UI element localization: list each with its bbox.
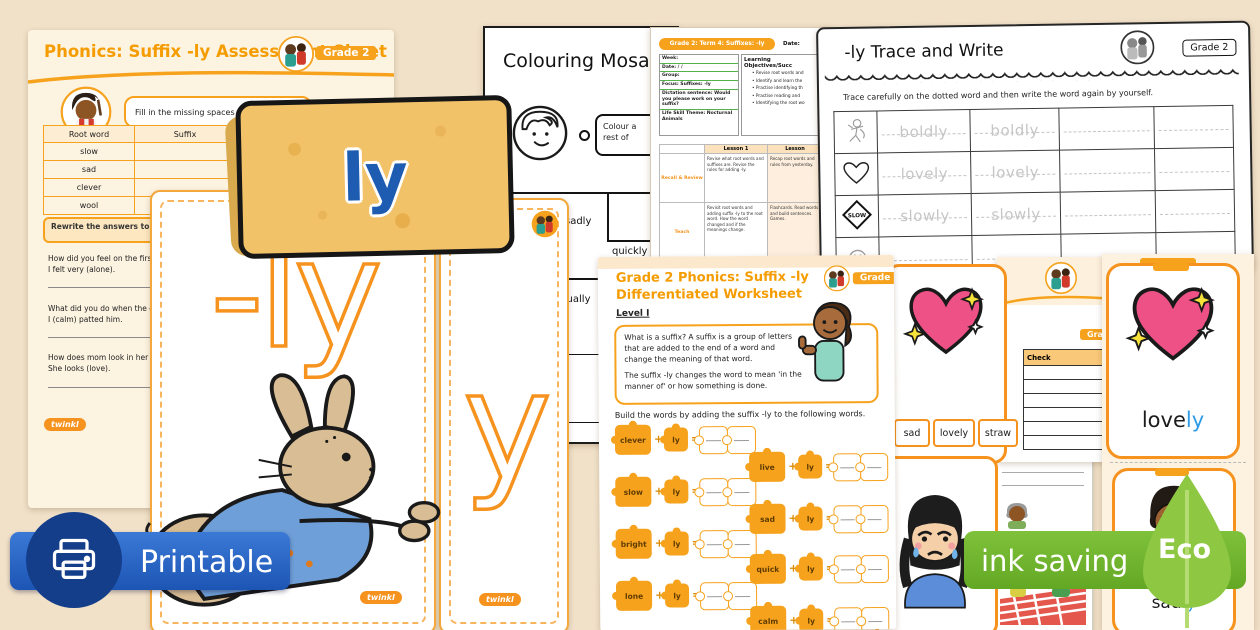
grade-badge: Grade 2 xyxy=(316,46,376,60)
row-label: Recall & Review xyxy=(660,154,705,203)
plan-cell: Flashcards. Read words and build sentenc… xyxy=(768,203,823,262)
mosaic-grid-line xyxy=(485,192,677,194)
puzzle-blank[interactable] xyxy=(861,555,889,583)
column-header: Root word xyxy=(44,126,135,143)
trace-word: lovely xyxy=(900,164,948,183)
check-cell[interactable] xyxy=(1024,436,1103,450)
cut-line xyxy=(1110,462,1246,463)
row-label: Teach xyxy=(660,203,705,262)
mosaic-title: Colouring Mosaic xyxy=(503,50,665,72)
plan-field: Date: / / xyxy=(660,64,738,73)
worksheet-title-line2: Differentiated Worksheet xyxy=(616,287,802,303)
trace-word-cell: boldly xyxy=(970,108,1060,151)
twinkl-logo: twinkl xyxy=(44,418,86,431)
suffix-tag: ly xyxy=(235,95,515,259)
word-suffix: ly xyxy=(1186,408,1204,432)
word-root: love xyxy=(1142,408,1186,432)
write-cell[interactable] xyxy=(1154,147,1234,190)
puzzle-word: clever xyxy=(615,425,651,455)
objective-item: • Identifying the root wo xyxy=(752,101,820,107)
write-cell[interactable] xyxy=(1060,191,1156,234)
trace-word: lovely xyxy=(991,163,1039,182)
date-label: Date: xyxy=(783,41,800,47)
plan-header: Grade 2: Term 4: Suffixes: -ly xyxy=(659,38,775,50)
twinkl-kids-logo xyxy=(824,265,850,291)
plan-cell: Revisit root words and adding suffix -ly… xyxy=(705,203,768,262)
speech-connector-dot xyxy=(579,130,590,141)
card-word: lovely xyxy=(1109,408,1237,432)
trace-row: SLOW slowly slowly xyxy=(835,189,1235,237)
girl-thumbs-up-illustration xyxy=(794,295,861,387)
plan-objectives-box: Learning Objectives/Succ • Revise root w… xyxy=(741,54,823,136)
puzzle-word: sad xyxy=(749,504,785,534)
plan-lesson-table: Lesson 1 Lesson Recall & Review Revise w… xyxy=(659,144,823,262)
question-text: How did you feel on the first d xyxy=(48,254,161,263)
question-text: What did you do when the dog xyxy=(48,304,163,313)
answer-text: She looks (love). xyxy=(48,364,110,373)
trace-word: boldly xyxy=(990,121,1039,140)
objective-item: • Revise root words and xyxy=(752,71,820,77)
puzzle-blank[interactable] xyxy=(727,426,756,454)
resource-preview-canvas: Colouring Mosaic Colour a rest of sadly … xyxy=(0,0,1260,630)
puzzle-suffix: ly xyxy=(665,583,689,607)
plan-cell: Revise what root words and suffixes are.… xyxy=(705,154,768,203)
root-word-cell: clever xyxy=(44,179,135,197)
objectives-header: Learning Objectives/Succ xyxy=(744,57,820,69)
puzzle-blank[interactable] xyxy=(860,505,888,533)
plan-info-box: Week: Date: / / Group: Focus: Suffixes: … xyxy=(659,54,739,136)
word-options-row: sad lovely straw xyxy=(894,419,1018,447)
objective-item: • Practise identifying th xyxy=(752,86,820,92)
answer-text: I (calm) patted him. xyxy=(48,315,122,324)
puzzle-word: calm xyxy=(750,606,786,630)
trace-row: boldly boldly xyxy=(834,105,1234,153)
definition-paragraph-1: What is a suffix? A suffix is a group of… xyxy=(624,332,800,366)
write-cell[interactable] xyxy=(1060,149,1156,192)
tag-label: ly xyxy=(341,138,408,216)
root-word-cell: wool xyxy=(44,197,135,215)
puzzle-suffix: ly xyxy=(798,454,822,478)
puzzle-word: live xyxy=(749,452,785,482)
ink-saving-label: ink saving xyxy=(981,544,1128,578)
lesson1-header: Lesson 1 xyxy=(705,145,768,154)
twinkl-logo: twinkl xyxy=(360,591,402,604)
grade-box: Grade 2 xyxy=(1182,39,1236,57)
lesson2-header: Lesson xyxy=(768,145,823,154)
puzzle-suffix: ly xyxy=(798,506,822,530)
word-option[interactable]: sad xyxy=(894,419,930,447)
twinkl-kids-logo xyxy=(1045,262,1077,294)
check-cell[interactable] xyxy=(1024,394,1103,408)
puzzle-word: lone xyxy=(616,581,652,611)
answer-text: I felt very (alone). xyxy=(48,265,115,274)
twinkl-kids-logo xyxy=(531,210,559,238)
plan-field: Focus: Suffixes: -ly xyxy=(660,81,738,90)
eco-leaf-badge: Eco xyxy=(1141,472,1233,630)
column-header: Suffix xyxy=(135,126,236,143)
plan-cell: Recap root words and rules from yesterda… xyxy=(768,154,823,203)
write-cell[interactable] xyxy=(1154,105,1234,148)
row-icon-cell xyxy=(835,153,879,196)
printable-label: Printable xyxy=(140,545,273,580)
puzzle-suffix: ly xyxy=(664,427,688,451)
trace-word-cell: lovely xyxy=(878,152,972,195)
puzzle-blank[interactable] xyxy=(860,453,888,481)
objective-text: Identify and learn the xyxy=(756,79,802,84)
write-cell[interactable] xyxy=(1155,189,1235,232)
write-line xyxy=(1002,472,1084,473)
check-header-cell: Check xyxy=(1024,350,1103,366)
question-text: How does mom look in her nev xyxy=(48,353,164,362)
twinkl-kids-logo xyxy=(1120,30,1155,65)
check-cell[interactable] xyxy=(1024,366,1103,380)
objective-text: Revise root words and xyxy=(756,71,804,76)
plan-field: Dictation sentence: Would you please wor… xyxy=(660,90,738,110)
objective-text: Identifying the root wo xyxy=(756,101,805,106)
write-line xyxy=(1002,485,1084,486)
card-tab xyxy=(1153,263,1189,271)
puzzle-blank[interactable] xyxy=(727,478,756,506)
write-cell[interactable] xyxy=(1059,107,1155,150)
check-table: Check xyxy=(1023,349,1103,450)
objective-text: Practise reading and xyxy=(756,94,800,99)
word-option[interactable]: straw xyxy=(978,419,1018,447)
trace-title: -ly Trace and Write xyxy=(844,40,1003,62)
trace-row: lovely lovely xyxy=(835,147,1235,195)
check-cell[interactable] xyxy=(1024,408,1103,422)
sparkly-heart-icon xyxy=(1125,280,1221,366)
mosaic-word: quickly xyxy=(612,246,647,257)
printer-icon xyxy=(48,534,100,586)
puzzle-suffix: ly xyxy=(799,556,823,580)
differentiated-worksheet: Grade 2 Phonics: Suffix -ly Differentiat… xyxy=(598,255,897,630)
puzzle-word: bright xyxy=(616,529,652,559)
lesson-plan-page: Grade 2: Term 4: Suffixes: -ly Date: Wee… xyxy=(650,27,832,264)
wave-divider xyxy=(825,69,1239,85)
root-word-cell: sad xyxy=(44,161,135,179)
worksheet-title-line1: Grade 2 Phonics: Suffix -ly xyxy=(616,270,809,286)
sparkly-heart-icon xyxy=(902,281,990,359)
bubble-line2: rest of xyxy=(603,133,629,142)
trace-word-cell: lovely xyxy=(971,150,1061,193)
puzzle-suffix: ly xyxy=(664,479,688,503)
trace-instruction: Trace carefully on the dotted word and t… xyxy=(843,88,1153,102)
mosaic-grid-line xyxy=(607,192,609,242)
root-word-cell: slow xyxy=(44,143,135,161)
header-swoosh xyxy=(28,66,394,86)
trace-and-write-sheet: -ly Trace and Write Grade 2 Trace carefu… xyxy=(816,21,1254,280)
trace-word-cell: slowly xyxy=(878,194,972,237)
plan-field: Week: xyxy=(660,55,738,64)
objective-item: • Practise reading and xyxy=(752,94,820,100)
heart-icon xyxy=(842,160,870,184)
lesson-row: Recall & Review Revise what root words a… xyxy=(660,154,823,203)
plan-field: Life Skill Theme: Nocturnal Animals xyxy=(660,110,738,123)
trace-word: boldly xyxy=(899,122,948,141)
row-icon-cell: SLOW xyxy=(835,195,879,238)
bubble-line1: Colour a xyxy=(603,122,636,131)
check-cell[interactable] xyxy=(1024,422,1103,436)
level-label: Level I xyxy=(616,309,649,319)
row-icon-cell xyxy=(834,111,878,154)
lesson-header-row: Lesson 1 Lesson xyxy=(660,145,823,154)
trace-word: slowly xyxy=(900,206,950,225)
objective-text: Practise identifying th xyxy=(756,86,803,91)
lesson-row: Teach Revisit root words and adding suff… xyxy=(660,203,823,262)
word-option[interactable]: lovely xyxy=(933,419,975,447)
puzzle-word: slow xyxy=(615,477,651,507)
suffix-cell[interactable] xyxy=(135,143,236,161)
trace-word: slowly xyxy=(991,205,1041,224)
superhero-icon xyxy=(840,115,870,145)
slow-sign-icon: SLOW xyxy=(841,198,873,230)
plan-field: Group: xyxy=(660,72,738,81)
build-instruction: Build the words by adding the suffix -ly… xyxy=(615,409,865,420)
check-cell[interactable] xyxy=(1024,380,1103,394)
slow-sign-text: SLOW xyxy=(848,213,866,219)
grandma-illustration xyxy=(1004,501,1030,529)
mosaic-kid-face-icon xyxy=(511,104,569,162)
suffix-cell[interactable] xyxy=(135,161,236,179)
puzzle-suffix: ly xyxy=(799,608,823,630)
grade-badge: Grade 2 xyxy=(853,272,896,284)
definition-paragraph-2: The suffix -ly changes the word to mean … xyxy=(624,370,806,393)
trace-word-cell: boldly xyxy=(877,110,971,153)
eco-label: Eco xyxy=(1158,534,1211,565)
printer-icon-circle xyxy=(26,512,122,608)
heart-word-card: sad lovely straw xyxy=(885,264,1007,464)
objective-item: • Identify and learn the xyxy=(752,79,820,85)
puzzle-blank[interactable] xyxy=(861,607,889,630)
trace-word-cell: slowly xyxy=(971,192,1061,235)
puzzle-suffix: ly xyxy=(665,531,689,555)
lovely-flashcard: lovely xyxy=(1106,263,1240,459)
puzzle-word: quick xyxy=(750,554,786,584)
